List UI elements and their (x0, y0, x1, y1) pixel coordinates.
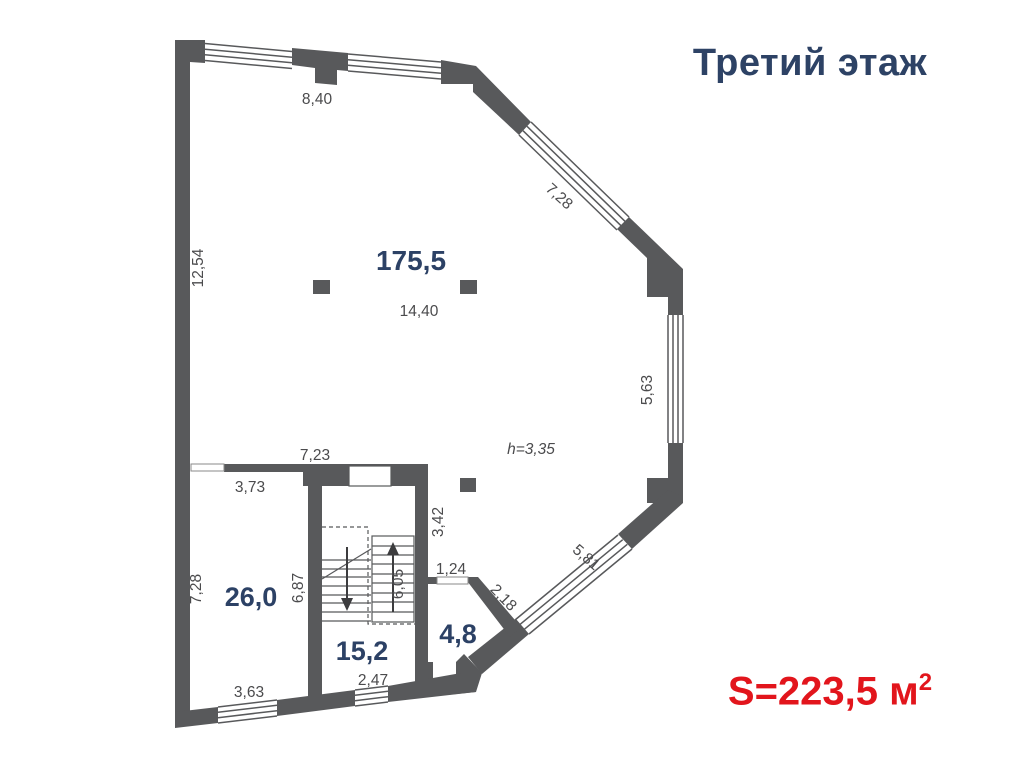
dim-stair-bottom-window: 2,47 (358, 672, 388, 689)
window-bottom-stair (355, 686, 388, 706)
small-room-opening (437, 577, 468, 584)
exterior-walls (175, 40, 683, 728)
column-2 (460, 280, 477, 294)
dim-right-wall: 5,63 (639, 375, 656, 405)
wall-top-right-corner (441, 60, 531, 135)
dim-room26-right: 6,87 (290, 573, 307, 603)
floor-plan: 175,5 26,0 15,2 4,8 8,40 7,28 12,54 14,4… (0, 0, 1024, 768)
area-total-value: S=223,5 м (728, 669, 919, 713)
wall-right-upper (617, 217, 683, 315)
stair-left-wall (308, 464, 322, 696)
dim-ceiling-height: h=3,35 (507, 441, 555, 458)
stair-arrow-down (341, 547, 353, 611)
dim-main-room-width: 14,40 (400, 303, 439, 320)
door-opening-room26 (191, 464, 224, 471)
window-bottom-room26 (218, 700, 277, 723)
wall-left (175, 40, 190, 728)
room-label-stair: 15,2 (336, 636, 389, 666)
window-right (668, 315, 683, 443)
stair-right-wall (415, 464, 428, 696)
partition-room26 (224, 464, 311, 472)
dim-room26-left: 7,28 (188, 574, 205, 604)
window-top-1 (205, 44, 292, 69)
dim-small-room-opening: 1,24 (436, 561, 467, 578)
room-label-small: 4,8 (439, 619, 477, 649)
dim-partition-width: 7,23 (300, 447, 330, 464)
columns (313, 280, 477, 492)
column-1 (313, 280, 330, 294)
dim-stair-right-upper: 3,42 (430, 507, 447, 537)
dim-stair-flight: 6,05 (390, 569, 407, 599)
area-total-sup: 2 (919, 669, 932, 696)
dim-top-wall: 8,40 (302, 91, 333, 108)
small-room-top-stub (428, 577, 437, 584)
stair-door-opening (349, 466, 391, 486)
dim-room26-top: 3,73 (235, 479, 265, 496)
window-top-2 (348, 54, 441, 79)
room-label-26: 26,0 (225, 582, 278, 612)
column-3 (460, 478, 476, 492)
window-diag-top-right (519, 122, 629, 230)
dim-room26-bottom-window: 3,63 (234, 684, 264, 701)
dim-left-wall: 12,54 (190, 248, 207, 287)
wall-top-pier (292, 48, 348, 85)
area-total: S=223,5 м2 (690, 669, 970, 714)
room-label-main: 175,5 (376, 245, 446, 276)
